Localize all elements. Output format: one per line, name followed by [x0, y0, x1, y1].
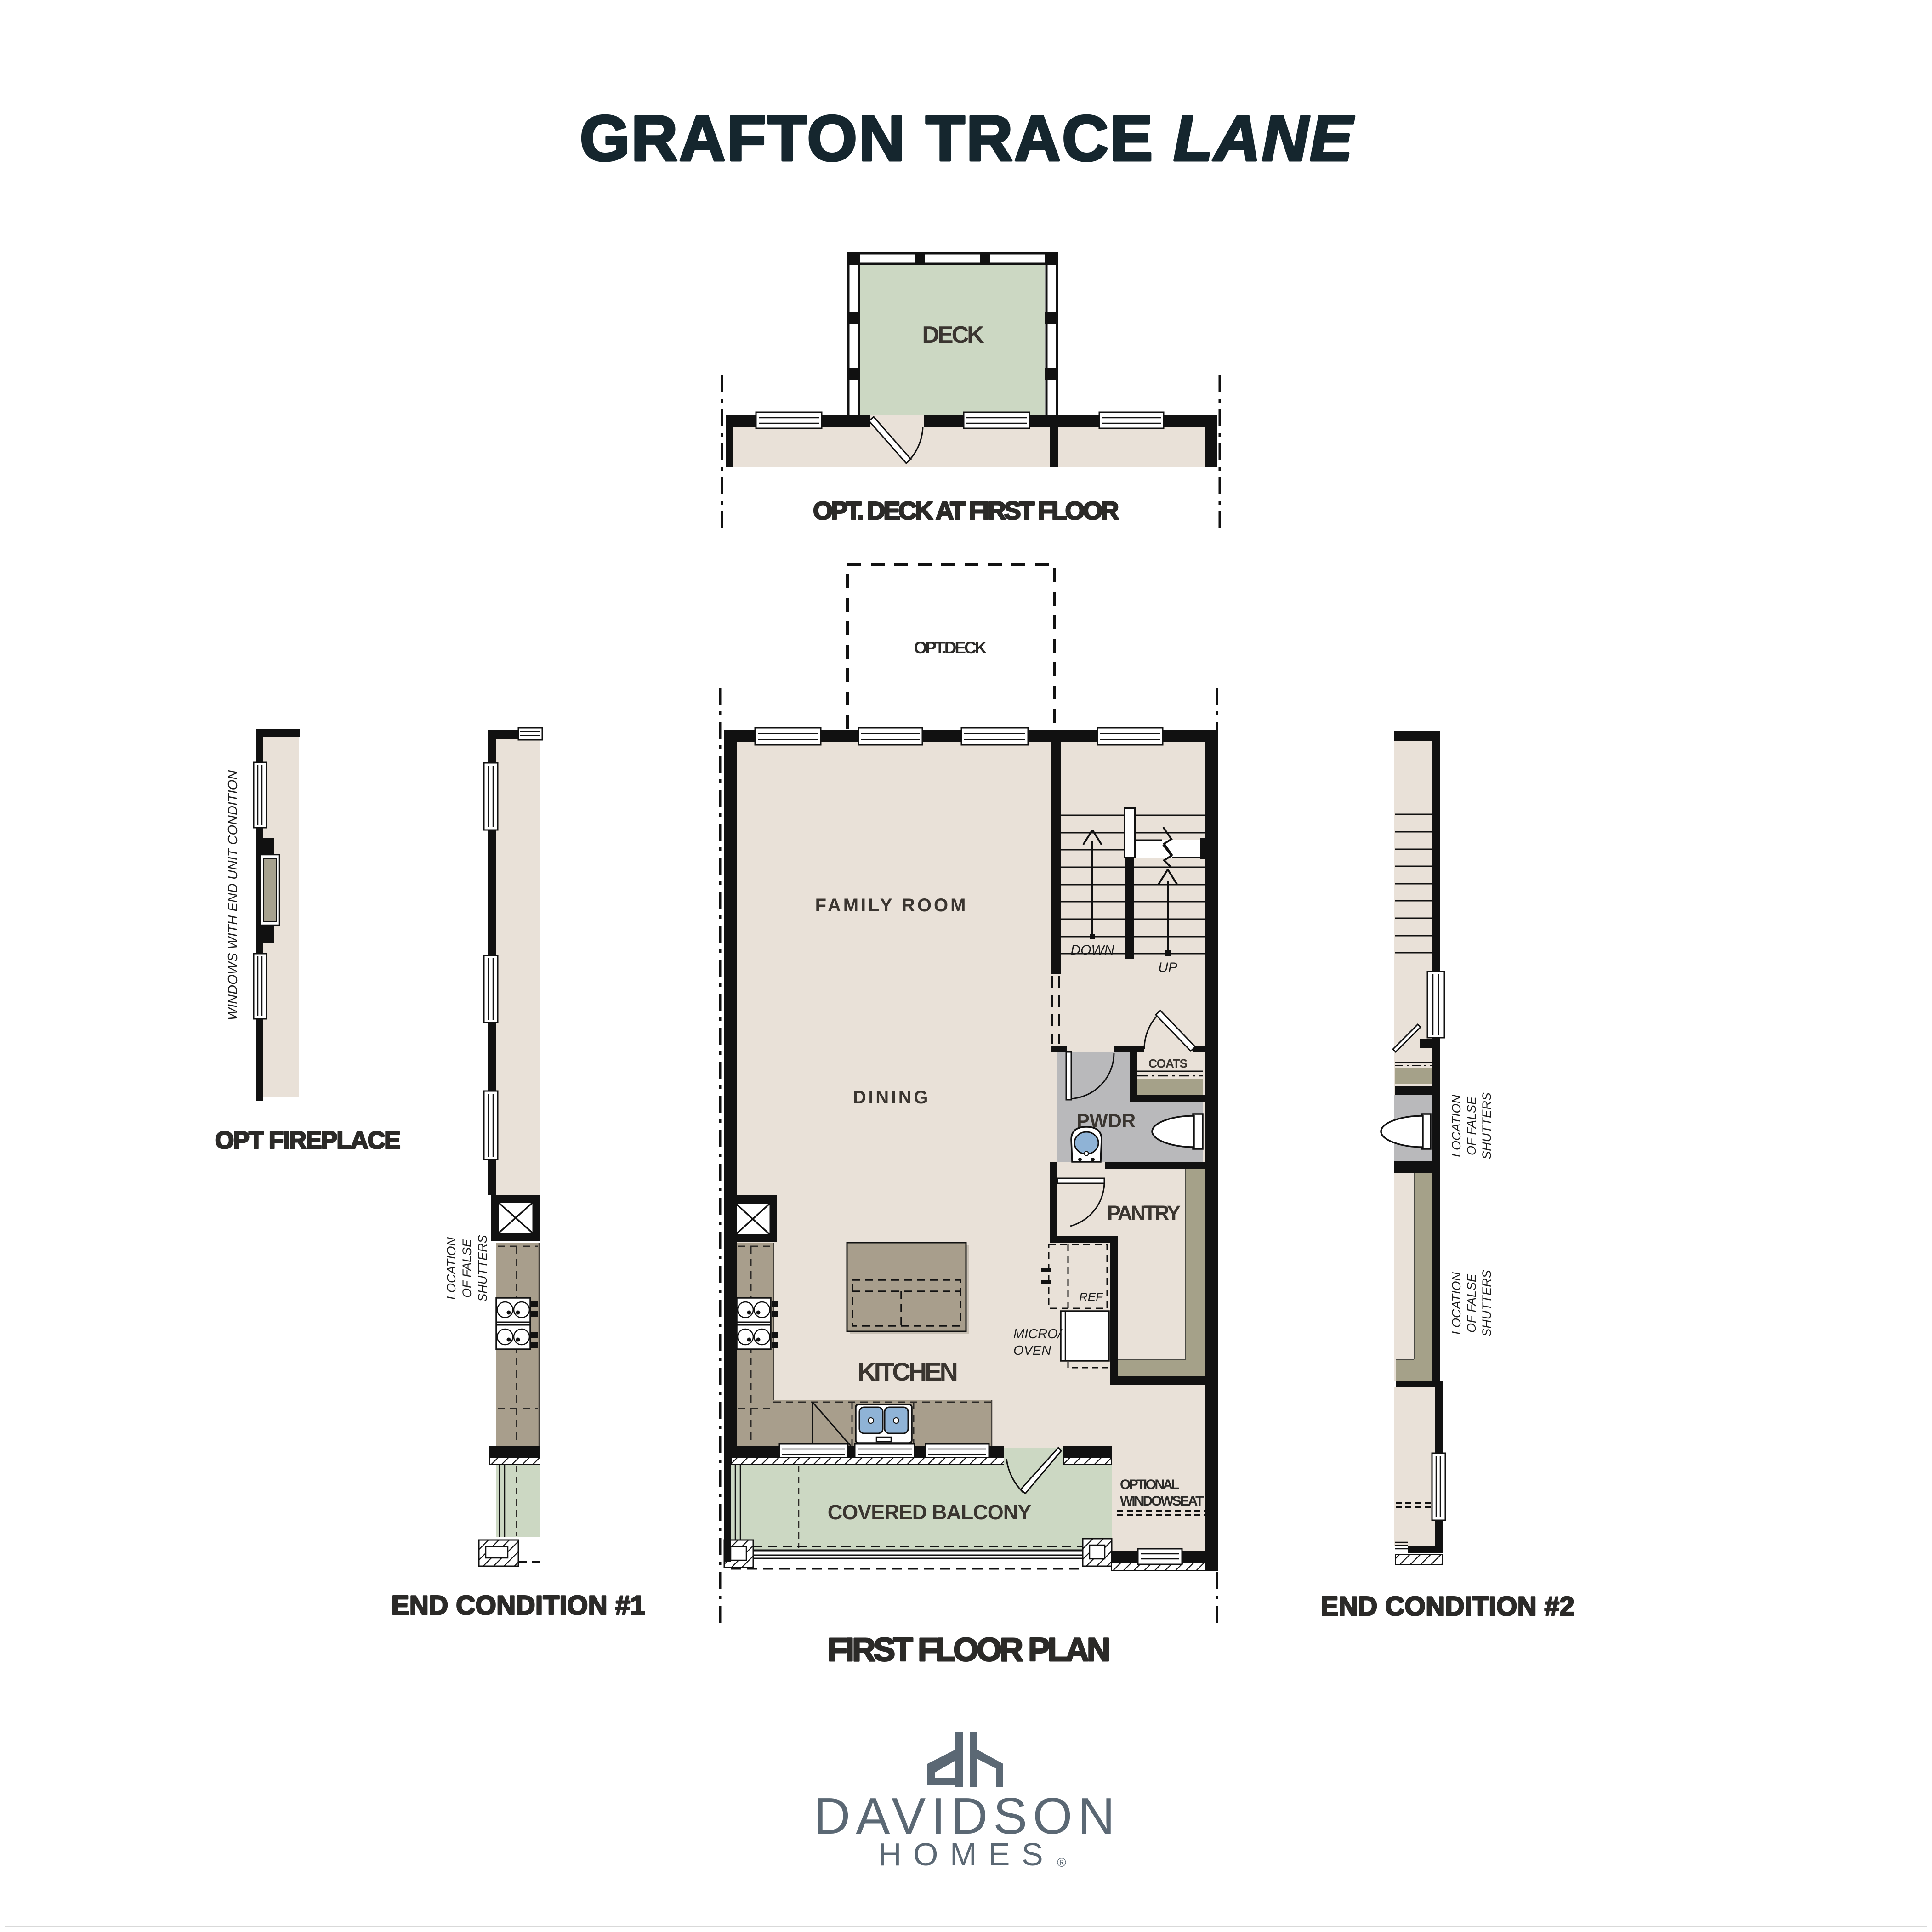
svg-text:OF FALSE: OF FALSE: [1465, 1096, 1478, 1155]
svg-text:SHUTTERS: SHUTTERS: [476, 1235, 489, 1302]
svg-text:OF FALSE: OF FALSE: [1465, 1273, 1478, 1333]
svg-text:WINDOWS WITH END UNIT CONDITIO: WINDOWS WITH END UNIT CONDITION: [226, 770, 240, 1021]
svg-text:OPTIONAL: OPTIONAL: [1120, 1477, 1179, 1492]
svg-text:®: ®: [1057, 1856, 1066, 1869]
svg-text:OVEN: OVEN: [1013, 1343, 1051, 1358]
svg-text:SHUTTERS: SHUTTERS: [1480, 1092, 1494, 1159]
svg-text:COVERED BALCONY: COVERED BALCONY: [828, 1500, 1032, 1524]
svg-text:OF FALSE: OF FALSE: [460, 1239, 474, 1298]
svg-text:FAMILY ROOM: FAMILY ROOM: [815, 895, 968, 915]
svg-text:OPT.DECK: OPT.DECK: [914, 638, 987, 657]
svg-text:UP: UP: [1158, 960, 1177, 975]
svg-text:END CONDITION #1: END CONDITION #1: [392, 1591, 646, 1620]
svg-text:PANTRY: PANTRY: [1107, 1201, 1181, 1225]
svg-text:LOCATION: LOCATION: [1449, 1094, 1463, 1157]
svg-text:DOWN: DOWN: [1071, 943, 1114, 958]
svg-text:KITCHEN: KITCHEN: [858, 1357, 956, 1386]
svg-text:REF: REF: [1079, 1290, 1104, 1304]
svg-text:END CONDITION #2: END CONDITION #2: [1321, 1591, 1575, 1621]
svg-text:LOCATION: LOCATION: [444, 1237, 458, 1300]
svg-text:SHUTTERS: SHUTTERS: [1480, 1270, 1494, 1337]
svg-text:HOMES: HOMES: [878, 1836, 1055, 1872]
svg-text:MICRO/: MICRO/: [1013, 1327, 1063, 1341]
svg-text:FIRST FLOOR PLAN: FIRST FLOOR PLAN: [827, 1632, 1108, 1668]
svg-text:OPT. DECK AT FIRST FLOOR: OPT. DECK AT FIRST FLOOR: [813, 496, 1119, 525]
svg-text:COATS: COATS: [1148, 1057, 1188, 1070]
svg-text:WINDOWSEAT: WINDOWSEAT: [1120, 1494, 1204, 1509]
svg-text:GRAFTON TRACE LANE: GRAFTON TRACE LANE: [580, 102, 1354, 174]
svg-text:DINING: DINING: [853, 1087, 930, 1108]
svg-text:OPT FIREPLACE: OPT FIREPLACE: [215, 1127, 400, 1154]
svg-text:LOCATION: LOCATION: [1449, 1272, 1463, 1335]
svg-text:DECK: DECK: [922, 322, 984, 348]
